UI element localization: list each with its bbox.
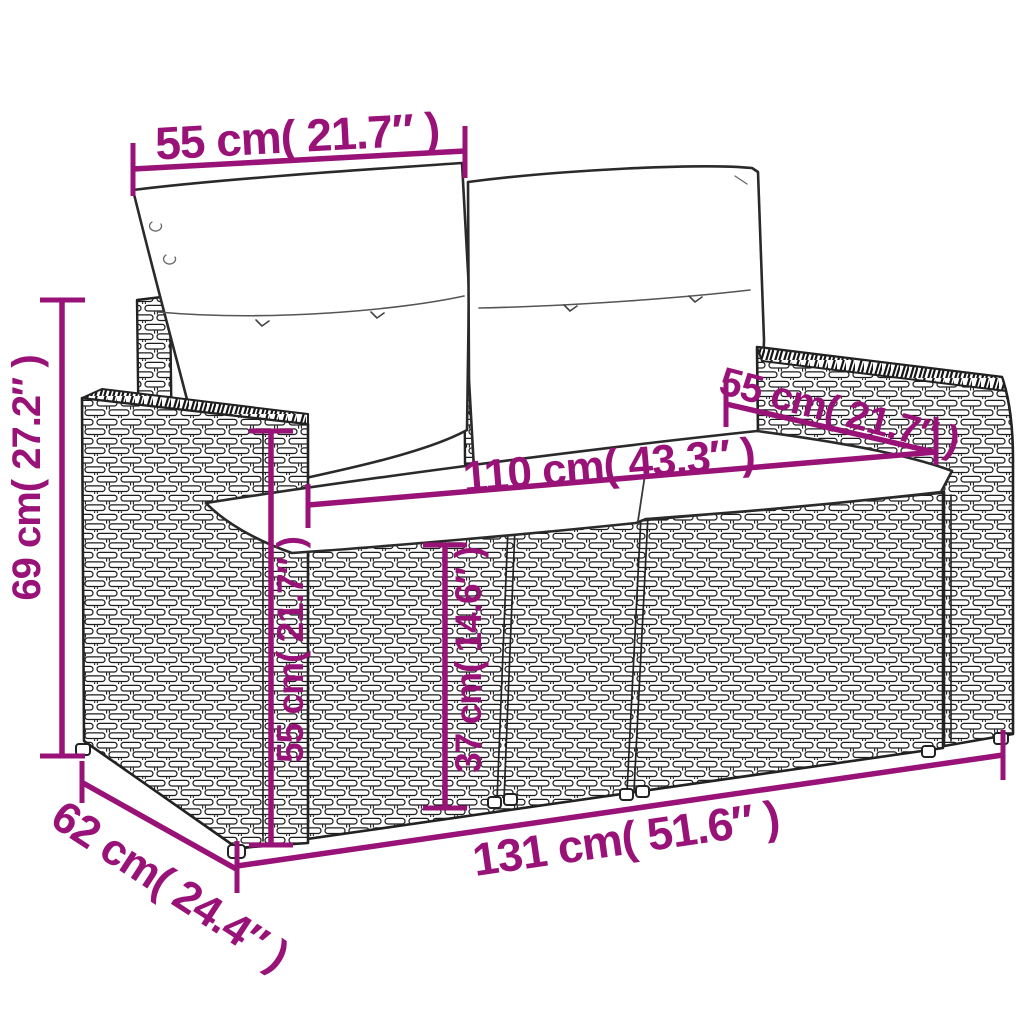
sofa bbox=[76, 163, 1013, 858]
dimension-overall-height: 69 cm( 27.2″ ) bbox=[5, 300, 85, 757]
dim-label-overall-height: 69 cm( 27.2″ ) bbox=[5, 355, 49, 600]
dim-label-backrest-cushion-width: 55 cm( 21.7″ ) bbox=[154, 102, 441, 169]
dim-label-armrest-height: 55 cm( 21.7″ ) bbox=[270, 537, 311, 763]
sofa-foot bbox=[488, 797, 501, 808]
sofa-foot bbox=[922, 746, 935, 757]
back-cushion-right bbox=[468, 166, 764, 469]
sofa-foot bbox=[620, 789, 633, 800]
sofa-foot bbox=[504, 794, 517, 805]
sofa-foot bbox=[636, 786, 649, 797]
dimension-diagram-canvas: 55 cm( 21.7″ ) 69 cm( 27.2″ ) 110 cm( 43… bbox=[0, 0, 1024, 1024]
sofa-foot bbox=[76, 744, 90, 755]
dim-label-seat-height: 37 cm( 14.6″ ) bbox=[448, 547, 489, 773]
sofa-dimension-illustration: 55 cm( 21.7″ ) 69 cm( 27.2″ ) 110 cm( 43… bbox=[0, 0, 1024, 1024]
